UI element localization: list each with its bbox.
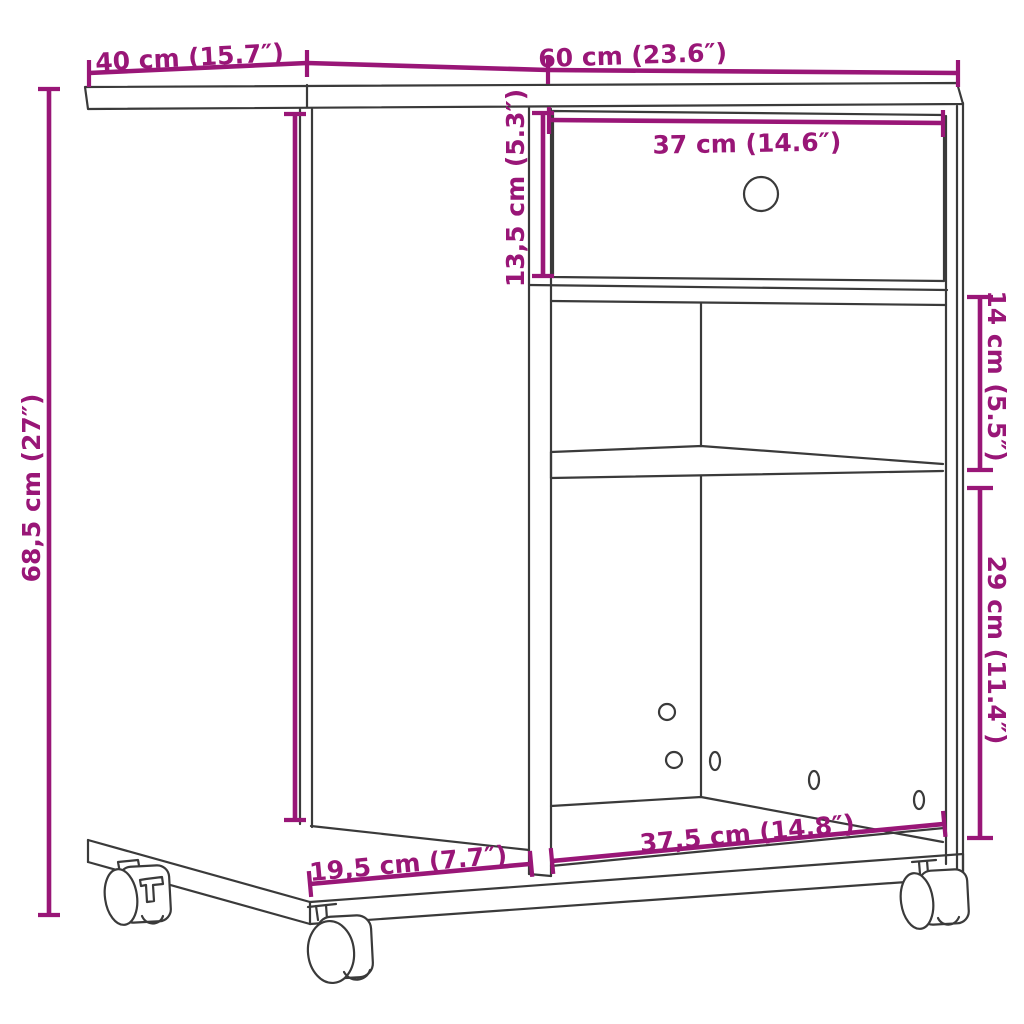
shelf-pin-hole — [659, 704, 675, 720]
dim-inner-clearance — [284, 114, 306, 820]
shelf-pin-hole — [666, 752, 682, 768]
label-bottom-space-height: 29 cm (11.4″) — [982, 556, 1011, 745]
dimension-diagram: 40 cm (15.7″) 60 cm (23.6″) 37 cm (14.6″… — [0, 0, 1024, 1024]
shelf-pin-hole — [914, 791, 924, 809]
shelf-pin-hole — [809, 771, 819, 789]
label-base-right-width: 37,5 cm (14.8″) — [638, 809, 855, 858]
caster-rear-left — [101, 860, 171, 927]
caster-right — [897, 860, 969, 931]
caster-front — [305, 904, 374, 985]
label-drawer-width: 37 cm (14.6″) — [652, 127, 841, 159]
label-base-left-depth: 19,5 cm (7.7″) — [308, 840, 508, 887]
cabinet-right-wall — [946, 103, 963, 890]
middle-shelf-top-edge — [551, 446, 943, 464]
label-shelf-gap-height: 14 cm (5.5″) — [982, 290, 1011, 461]
base-platform — [88, 826, 963, 924]
cabinet-left-wall — [529, 107, 551, 876]
caster-mount — [912, 860, 936, 862]
label-total-height: 68,5 cm (27″) — [17, 394, 46, 583]
left-leg-panel — [300, 109, 312, 827]
middle-compartment — [551, 303, 943, 478]
middle-shelf-front-edge — [551, 471, 943, 478]
bottom-compartment — [551, 476, 944, 866]
casters — [101, 860, 969, 985]
caster-mount — [308, 904, 336, 907]
diagram-canvas: 40 cm (15.7″) 60 cm (23.6″) 37 cm (14.6″… — [0, 0, 1024, 1024]
label-top-right-width: 60 cm (23.6″) — [538, 38, 728, 74]
drawer-finger-hole — [744, 177, 778, 211]
under-drawer-shelf — [529, 285, 947, 305]
label-drawer-height: 13,5 cm (5.3″) — [501, 89, 530, 287]
label-top-left-width: 40 cm (15.7″) — [95, 38, 285, 77]
shelf-pin-hole — [710, 752, 720, 770]
